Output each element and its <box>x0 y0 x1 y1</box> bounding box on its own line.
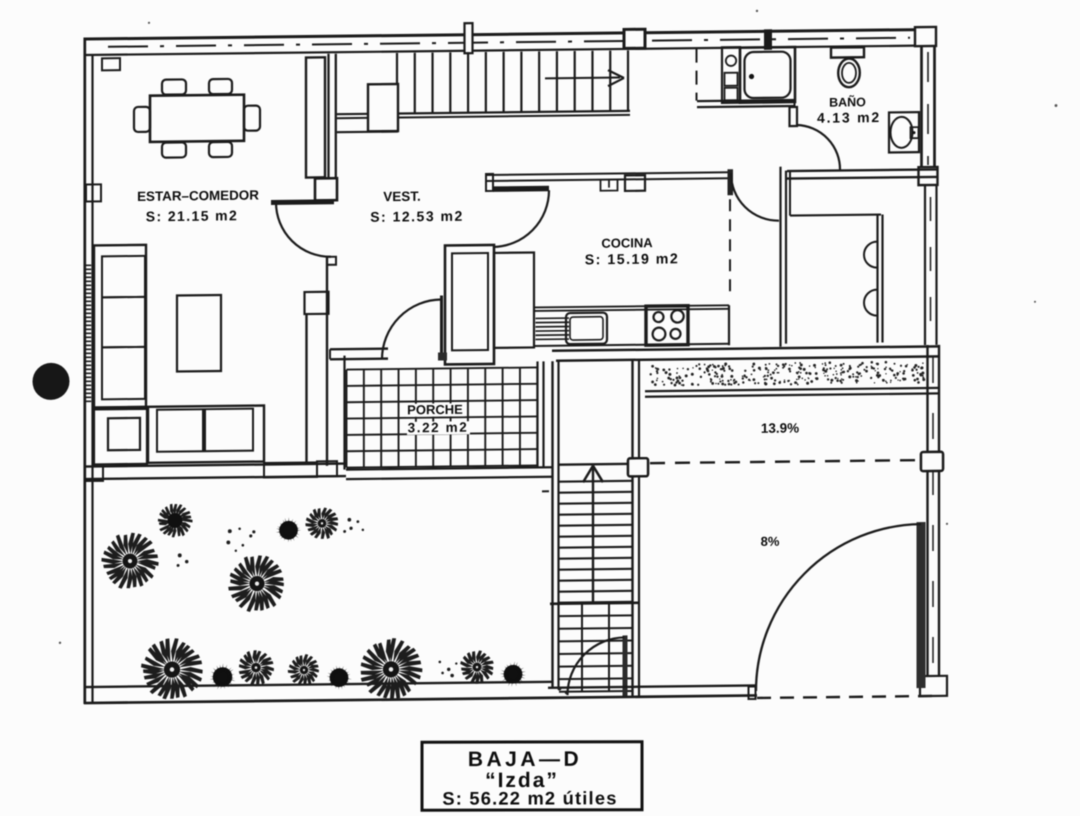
svg-text:3.22 m2: 3.22 m2 <box>408 420 469 436</box>
svg-text:4.13 m2: 4.13 m2 <box>817 109 881 126</box>
svg-text:13.9%: 13.9% <box>761 420 799 435</box>
svg-text:S: 56.22 m2 útiles: S: 56.22 m2 útiles <box>442 787 617 808</box>
svg-text:VEST.: VEST. <box>383 189 421 204</box>
svg-text:ESTAR–COMEDOR: ESTAR–COMEDOR <box>137 188 259 204</box>
svg-text:S: 12.53 m2: S: 12.53 m2 <box>370 208 464 225</box>
svg-text:S: 15.19 m2: S: 15.19 m2 <box>585 251 680 268</box>
svg-text:PORCHE: PORCHE <box>407 402 463 418</box>
svg-text:COCINA: COCINA <box>601 235 653 251</box>
svg-text:S: 21.15 m2: S: 21.15 m2 <box>146 207 238 224</box>
svg-text:BAÑO: BAÑO <box>829 94 866 109</box>
svg-text:BAJA—D: BAJA—D <box>468 748 582 771</box>
svg-text:8%: 8% <box>761 534 780 549</box>
